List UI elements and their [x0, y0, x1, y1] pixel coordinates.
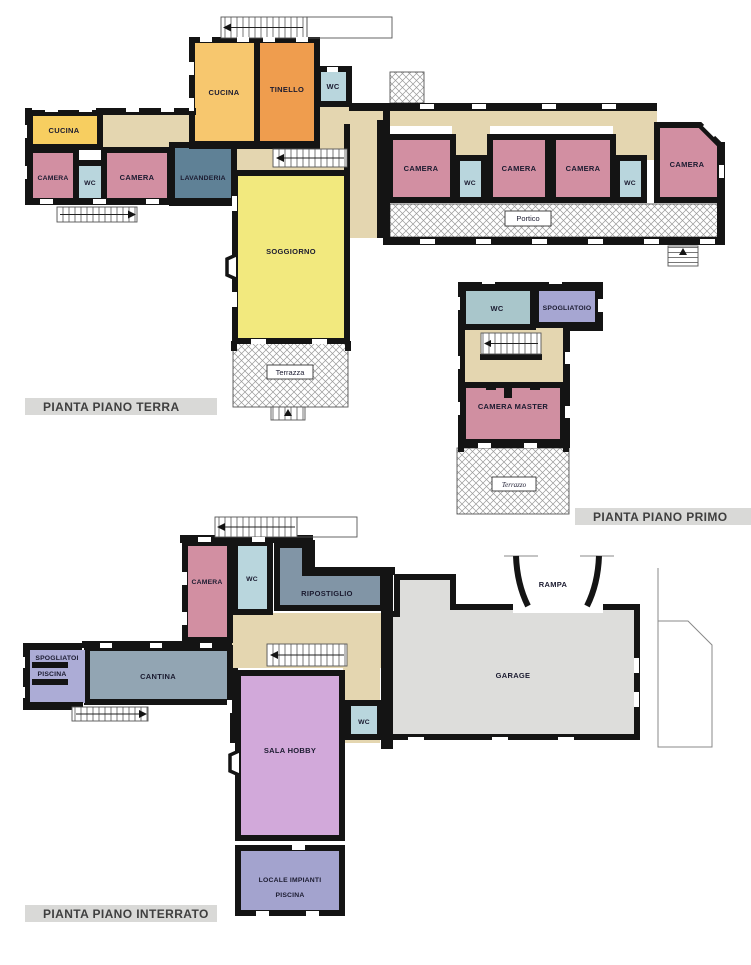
room-wc: [457, 158, 484, 200]
window-gap: [472, 104, 486, 109]
stairs-bottom-left-interrato-icon: [72, 707, 148, 721]
window-gap: [182, 612, 187, 625]
label-terrazza: Terrazza: [276, 368, 306, 377]
window-gap: [40, 199, 53, 204]
room-sala-hobby: [238, 673, 342, 838]
wall-segment: [458, 441, 570, 448]
floor-plan-page: CUCINA TINELLO WC CUCINA CAMERA WC CAMER…: [0, 0, 751, 960]
window-gap: [634, 658, 639, 673]
floor-terra: CUCINA TINELLO WC CUCINA CAMERA WC CAMER…: [22, 17, 725, 420]
window-gap: [45, 107, 58, 112]
room-camera: [185, 543, 230, 640]
wall-segment: [189, 141, 320, 149]
label-tinello: TINELLO: [270, 85, 304, 94]
wall-segment: [231, 341, 237, 351]
window-gap: [312, 339, 327, 344]
stairs-portico-icon: [668, 246, 698, 266]
stairs-bottom-left-icon: [57, 207, 137, 222]
ramp-yard-outline: [658, 568, 712, 747]
floor-primo: WC SPOGLIATOIO CAMERA MASTER Terrazzo PI…: [455, 279, 751, 525]
label-wc: WC: [84, 180, 96, 187]
portico-hatch: [390, 204, 720, 237]
cubicle-stub: [32, 679, 68, 685]
window-gap: [232, 196, 237, 211]
stairs-landing: [297, 517, 357, 537]
wall-segment: [23, 643, 82, 650]
window-gap: [327, 67, 338, 72]
door-stub: [530, 383, 540, 390]
window-gap: [588, 239, 603, 244]
label-camera-master: CAMERA MASTER: [478, 402, 549, 411]
corridor: [452, 126, 490, 160]
window-gap: [126, 107, 139, 112]
window-gap: [20, 657, 25, 668]
wall-segment: [480, 354, 542, 360]
label-terrazzo: Terrazzo: [502, 481, 527, 489]
window-gap: [700, 239, 715, 244]
wall-segment: [563, 444, 569, 452]
label-cucina: CUCINA: [209, 88, 240, 97]
window-gap: [100, 643, 112, 648]
label-cantina: CANTINA: [140, 672, 176, 681]
label-wc: WC: [464, 180, 476, 187]
label-camera: CAMERA: [566, 164, 601, 173]
bay-window: [230, 751, 239, 775]
window-gap: [634, 692, 639, 707]
window-gap: [455, 297, 460, 310]
room-lavanderia: [172, 145, 234, 203]
window-gap: [22, 166, 27, 179]
label-soggiorno: SOGGIORNO: [266, 247, 316, 256]
label-wc: WC: [624, 180, 636, 187]
stairs-landing: [307, 17, 392, 38]
label-wc: WC: [326, 82, 339, 91]
window-gap: [227, 700, 232, 713]
label-spogliatoi: SPOGLIATOI: [35, 655, 78, 662]
corridor: [100, 113, 192, 147]
stairs-terrazza-icon: [271, 407, 305, 420]
wall-segment: [383, 110, 390, 240]
label-piscina: PISCINA: [276, 892, 305, 899]
wall-segment: [96, 108, 196, 115]
stairs-internal-interrato-icon: [267, 644, 347, 666]
corridor: [349, 110, 657, 126]
label-portico: Portico: [516, 214, 539, 223]
window-gap: [150, 643, 162, 648]
window-gap: [237, 37, 249, 42]
window-gap: [252, 537, 265, 542]
corridor: [613, 126, 657, 160]
window-gap: [482, 279, 495, 284]
window-gap: [251, 339, 266, 344]
floor-plans-drawing: CUCINA TINELLO WC CUCINA CAMERA WC CAMER…: [0, 0, 751, 960]
label-spogliatoio: SPOGLIATOIO: [543, 305, 592, 312]
label-garage: GARAGE: [496, 671, 531, 680]
room-ripostiglio: [277, 545, 383, 608]
label-sala-hobby: SALA HOBBY: [264, 746, 316, 755]
label-locale-impianti: LOCALE IMPIANTI: [259, 877, 322, 884]
floor-interrato: CAMERA WC RIPOSTIGLIO SPOGLIATOI PISCINA…: [20, 517, 712, 922]
label-wc: WC: [490, 304, 503, 313]
window-gap: [292, 845, 305, 850]
window-gap: [644, 239, 659, 244]
rampa-wall-curve: [587, 556, 599, 606]
window-gap: [227, 806, 232, 819]
label-camera: CAMERA: [670, 160, 705, 169]
window-gap: [476, 239, 491, 244]
label-ripostiglio: RIPOSTIGLIO: [301, 589, 353, 598]
label-piscina: PISCINA: [38, 671, 67, 678]
stairs-primo-icon: [481, 333, 541, 354]
stairs-internal-icon: [273, 149, 347, 167]
window-gap: [719, 165, 724, 178]
door-stub: [486, 383, 496, 390]
label-rampa: RAMPA: [539, 580, 568, 589]
label-camera: CAMERA: [120, 173, 155, 182]
window-gap: [93, 199, 106, 204]
window-gap: [200, 643, 212, 648]
room-camera-master: [463, 385, 563, 442]
wall-segment: [458, 444, 464, 452]
window-gap: [478, 443, 491, 448]
window-gap: [524, 443, 537, 448]
balcony-hatch: [390, 72, 424, 103]
window-gap: [263, 37, 275, 42]
window-gap: [232, 292, 237, 307]
window-gap: [602, 104, 616, 109]
wall-segment: [25, 198, 237, 205]
window-gap: [306, 911, 319, 916]
window-gap: [22, 125, 27, 138]
window-gap: [182, 572, 187, 585]
door-stub: [504, 383, 512, 398]
stairs-top-icon: [221, 17, 392, 38]
cubicle-stub: [32, 662, 68, 668]
wall-segment: [25, 108, 32, 205]
label-cucina: CUCINA: [49, 126, 80, 135]
window-gap: [455, 402, 460, 415]
wall-segment: [717, 142, 725, 245]
window-gap: [420, 104, 434, 109]
stairs-top-interrato-icon: [215, 517, 357, 537]
window-gap: [200, 37, 212, 42]
wall-segment: [563, 324, 570, 448]
window-gap: [565, 352, 570, 364]
caption-terra: PIANTA PIANO TERRA: [43, 400, 180, 414]
window-gap: [532, 239, 547, 244]
window-gap: [256, 911, 269, 916]
label-camera: CAMERA: [37, 175, 68, 182]
corridor: [350, 126, 377, 238]
window-gap: [455, 356, 460, 369]
rampa-wall-curve: [516, 556, 528, 606]
wall-segment: [303, 540, 315, 570]
window-gap: [20, 687, 25, 698]
window-gap: [598, 299, 603, 312]
window-gap: [420, 239, 435, 244]
window-gap: [189, 98, 194, 111]
label-wc: WC: [246, 576, 258, 583]
window-gap: [492, 737, 508, 742]
window-gap: [549, 279, 562, 284]
label-camera: CAMERA: [404, 164, 439, 173]
caption-interrato: PIANTA PIANO INTERRATO: [43, 907, 209, 921]
wall-segment: [23, 643, 30, 710]
label-camera: CAMERA: [191, 579, 222, 586]
wall-segment: [377, 120, 384, 238]
window-gap: [296, 37, 308, 42]
caption-primo: PIANTA PIANO PRIMO: [593, 510, 728, 524]
window-gap: [198, 537, 211, 542]
room-wc: [617, 158, 644, 200]
wall-segment: [458, 282, 603, 289]
wall-segment: [381, 567, 393, 749]
window-gap: [189, 62, 194, 75]
window-gap: [146, 199, 159, 204]
bay-window: [227, 255, 236, 279]
window-gap: [565, 406, 570, 418]
label-wc: WC: [358, 719, 370, 726]
window-gap: [542, 104, 556, 109]
window-gap: [558, 737, 574, 742]
window-gap: [79, 107, 92, 112]
wall-segment: [345, 341, 351, 351]
window-gap: [161, 107, 174, 112]
label-camera: CAMERA: [502, 164, 537, 173]
label-lavanderia: LAVANDERIA: [180, 175, 226, 182]
room-soggiorno: [235, 173, 347, 341]
window-gap: [408, 737, 424, 742]
